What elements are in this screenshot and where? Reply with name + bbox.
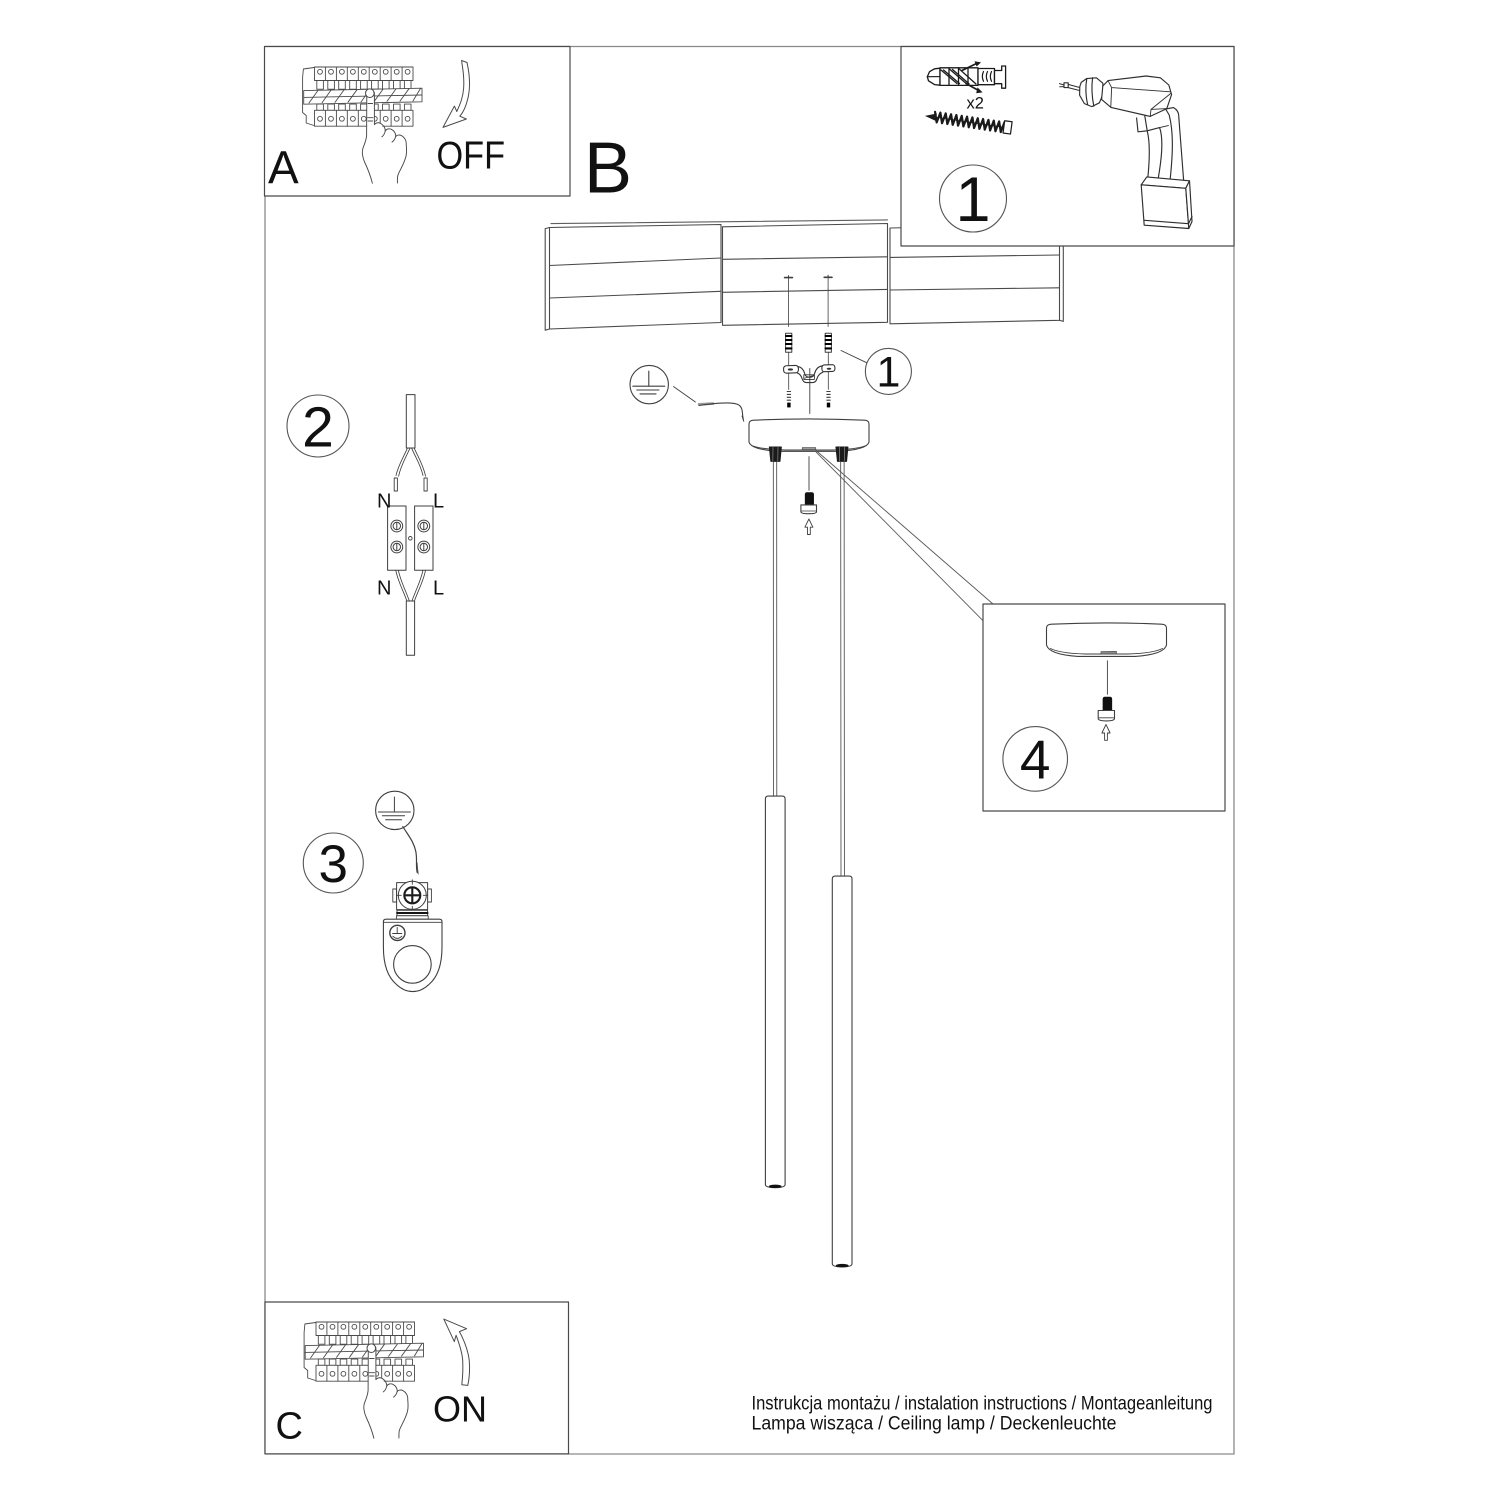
- svg-text:A: A: [268, 142, 299, 194]
- svg-text:N: N: [377, 578, 391, 600]
- svg-text:Lampa wisząca / Ceiling lamp /: Lampa wisząca / Ceiling lamp / Deckenleu…: [752, 1414, 1117, 1435]
- svg-text:4: 4: [1020, 728, 1051, 790]
- svg-text:ON: ON: [433, 1389, 487, 1430]
- svg-text:2: 2: [302, 396, 334, 460]
- svg-text:x2: x2: [967, 95, 984, 113]
- svg-text:C: C: [276, 1406, 303, 1448]
- svg-text:3: 3: [319, 835, 348, 894]
- svg-text:1: 1: [876, 349, 900, 397]
- svg-text:L: L: [433, 578, 444, 600]
- svg-text:N: N: [377, 491, 391, 513]
- svg-text:Instrukcja montażu / instalati: Instrukcja montażu / instalation instruc…: [752, 1394, 1213, 1415]
- svg-text:B: B: [584, 129, 632, 209]
- svg-text:OFF: OFF: [437, 135, 506, 178]
- svg-text:1: 1: [955, 165, 990, 235]
- svg-text:L: L: [433, 491, 444, 513]
